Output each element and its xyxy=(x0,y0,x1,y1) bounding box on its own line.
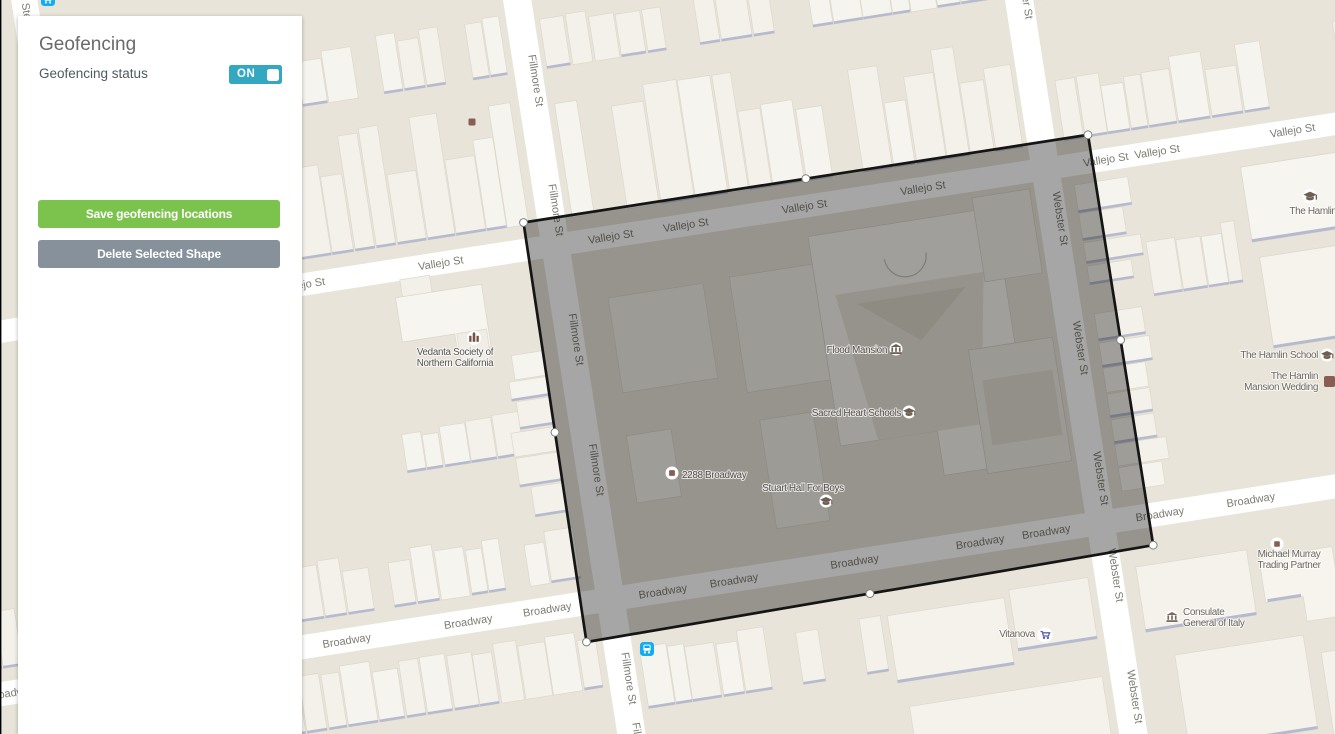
svg-text:Mansion Wedding: Mansion Wedding xyxy=(1244,382,1318,393)
svg-text:Trading Partner: Trading Partner xyxy=(1257,560,1321,571)
svg-text:2288 Broadway: 2288 Broadway xyxy=(682,470,747,481)
svg-text:Vitanova: Vitanova xyxy=(999,629,1035,640)
svg-text:The Hamlin School: The Hamlin School xyxy=(1240,350,1318,361)
svg-text:Consulate: Consulate xyxy=(1183,607,1225,618)
svg-text:Stuart Hall For Boys: Stuart Hall For Boys xyxy=(762,483,844,494)
svg-text:Sacred Heart Schools: Sacred Heart Schools xyxy=(812,408,902,419)
svg-text:General of Italy: General of Italy xyxy=(1183,618,1245,629)
svg-text:Michael Murray: Michael Murray xyxy=(1258,549,1321,560)
svg-text:Northern California: Northern California xyxy=(417,358,494,369)
svg-text:The Hamlin: The Hamlin xyxy=(1271,371,1318,382)
svg-text:The Hamlin: The Hamlin xyxy=(1289,206,1335,217)
svg-text:Flood Mansion: Flood Mansion xyxy=(827,345,887,356)
svg-text:Vedanta Society of: Vedanta Society of xyxy=(417,347,494,358)
